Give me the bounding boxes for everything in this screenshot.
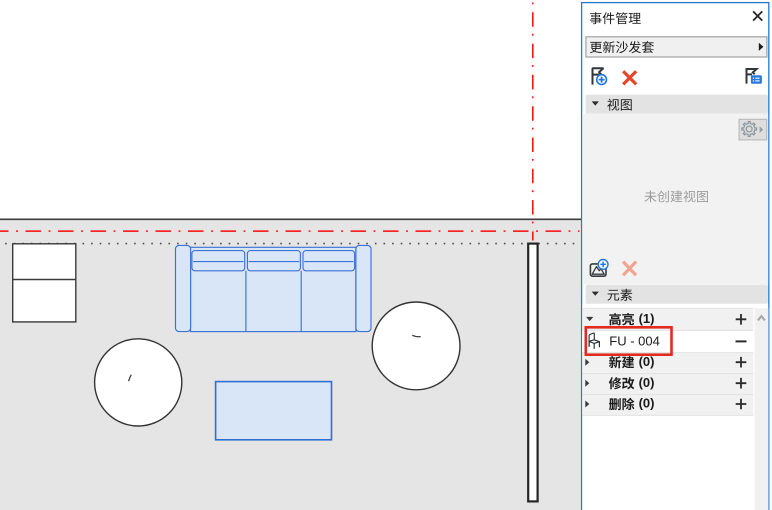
svg-text:FU - 004: FU - 004 xyxy=(609,333,660,348)
svg-text:(0): (0) xyxy=(639,354,655,369)
svg-text:(0): (0) xyxy=(639,396,655,411)
svg-text:(0): (0) xyxy=(639,375,655,390)
svg-text:(1): (1) xyxy=(639,311,655,326)
